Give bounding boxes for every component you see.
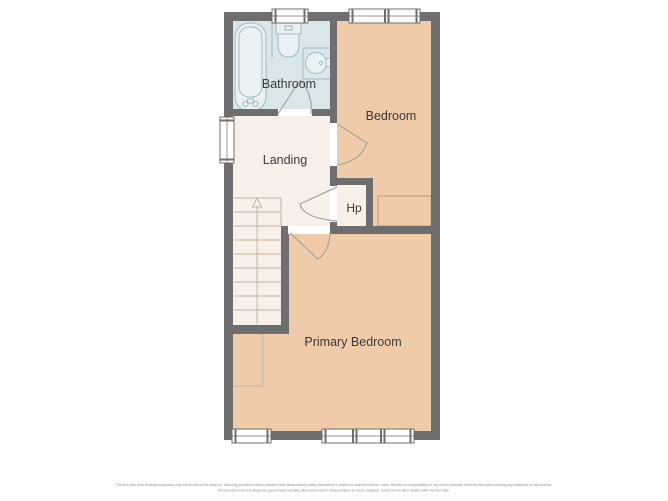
wall-outer-right	[431, 12, 440, 440]
bathroom-door-opening	[278, 109, 312, 116]
bathtub-icon	[235, 23, 266, 111]
room-label-primary-bedroom: Primary Bedroom	[304, 335, 401, 349]
room-label-landing: Landing	[263, 153, 308, 167]
hp-door-opening	[330, 186, 337, 222]
disclaimer-text: The floor plan is for illustration purpo…	[10, 483, 659, 494]
floor-plan-drawing: Bathroom Bedroom Landing Hp Primary Bedr…	[0, 0, 668, 501]
toilet-icon	[276, 23, 301, 57]
wall-hp-right	[366, 185, 373, 226]
window-primary-bottom-left	[232, 429, 271, 443]
wall-stairs-primary	[281, 234, 289, 334]
window-primary-bottom-right	[322, 429, 414, 443]
wall-outer-left	[224, 12, 233, 440]
wall-stairs-bottom	[233, 325, 289, 334]
room-label-hp: Hp	[346, 201, 362, 215]
window-bathroom-top	[272, 9, 308, 23]
room-label-bedroom: Bedroom	[366, 109, 417, 123]
room-label-bathroom: Bathroom	[262, 77, 316, 91]
wall-hp-top	[337, 178, 373, 185]
floor-plan-page: Bathroom Bedroom Landing Hp Primary Bedr…	[0, 0, 668, 501]
bedroom-door-opening	[330, 123, 337, 166]
primary-door-opening	[288, 226, 330, 234]
disclaimer-line-2: All measurements and details are approxi…	[10, 488, 659, 493]
window-landing-left	[220, 117, 234, 163]
window-bedroom-top	[349, 9, 420, 23]
